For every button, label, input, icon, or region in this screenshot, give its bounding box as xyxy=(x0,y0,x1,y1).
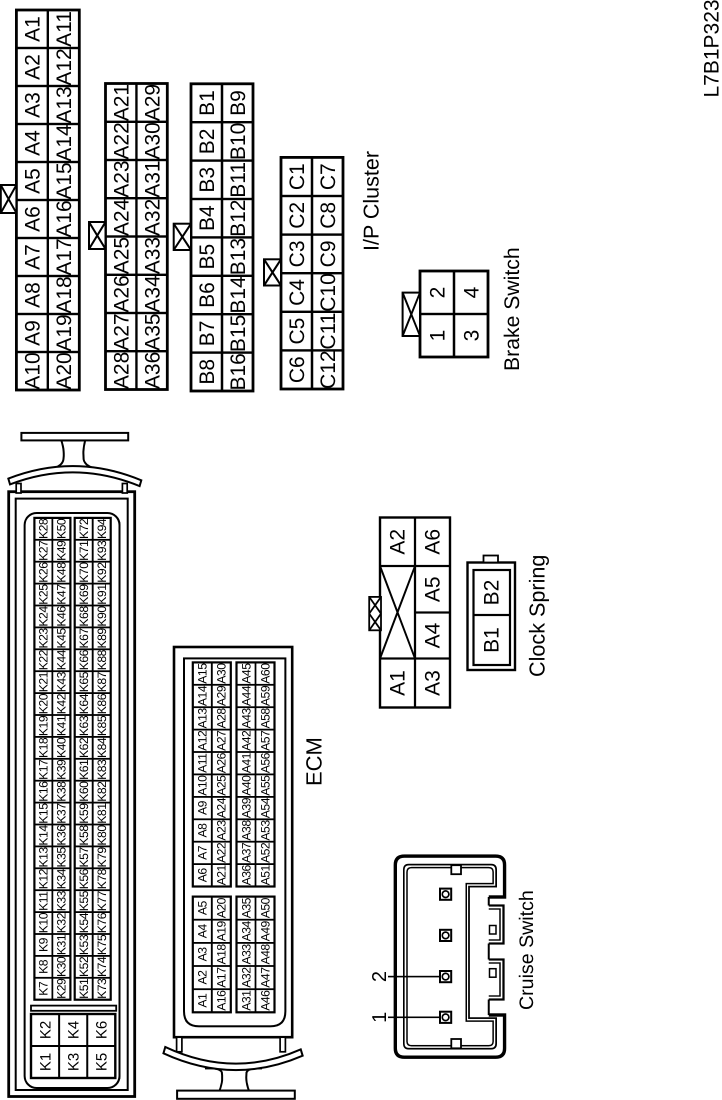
svg-text:C8: C8 xyxy=(317,202,340,229)
svg-text:A3: A3 xyxy=(422,670,445,696)
svg-text:K66: K66 xyxy=(77,649,91,670)
svg-text:K53: K53 xyxy=(77,934,91,955)
svg-text:A3: A3 xyxy=(196,947,210,962)
svg-text:K58: K58 xyxy=(77,825,91,846)
svg-text:K14: K14 xyxy=(37,825,51,846)
svg-text:B2: B2 xyxy=(481,580,504,606)
svg-text:A19: A19 xyxy=(53,314,76,351)
svg-text:K77: K77 xyxy=(95,890,109,911)
svg-text:K75: K75 xyxy=(95,934,109,955)
svg-text:A23: A23 xyxy=(110,160,133,197)
svg-text:A16: A16 xyxy=(53,200,76,237)
svg-text:A18: A18 xyxy=(215,944,229,965)
svg-text:A16: A16 xyxy=(215,990,229,1011)
svg-text:A43: A43 xyxy=(239,708,253,729)
svg-text:A12: A12 xyxy=(53,48,76,85)
svg-text:K34: K34 xyxy=(55,868,69,889)
svg-text:K18: K18 xyxy=(37,737,51,758)
svg-text:A29: A29 xyxy=(141,84,164,121)
svg-text:L7B1P323: L7B1P323 xyxy=(701,0,722,98)
svg-text:C7: C7 xyxy=(317,163,340,190)
svg-text:K48: K48 xyxy=(55,562,69,583)
svg-text:A34: A34 xyxy=(239,920,253,941)
svg-text:K86: K86 xyxy=(95,693,109,714)
svg-text:B8: B8 xyxy=(196,359,219,385)
svg-text:K59: K59 xyxy=(77,803,91,824)
svg-text:B4: B4 xyxy=(196,205,219,231)
svg-text:2: 2 xyxy=(369,971,391,982)
svg-text:K10: K10 xyxy=(37,912,51,933)
svg-text:K91: K91 xyxy=(95,584,109,605)
svg-text:C5: C5 xyxy=(286,318,309,345)
svg-text:A46: A46 xyxy=(258,990,272,1011)
svg-text:K42: K42 xyxy=(55,693,69,714)
svg-text:A27: A27 xyxy=(215,730,229,751)
svg-text:A35: A35 xyxy=(141,313,164,350)
svg-text:K40: K40 xyxy=(55,737,69,758)
svg-text:A6: A6 xyxy=(22,206,45,232)
svg-text:K9: K9 xyxy=(37,937,51,952)
svg-text:K64: K64 xyxy=(77,693,91,714)
svg-text:B9: B9 xyxy=(227,90,250,116)
svg-text:A36: A36 xyxy=(239,864,253,885)
svg-text:A2: A2 xyxy=(196,970,210,985)
svg-text:Clock Spring: Clock Spring xyxy=(525,555,550,677)
svg-text:B1: B1 xyxy=(196,90,219,116)
svg-text:A10: A10 xyxy=(196,775,210,796)
svg-text:A6: A6 xyxy=(422,529,445,555)
svg-text:K72: K72 xyxy=(77,518,91,539)
svg-text:K49: K49 xyxy=(55,540,69,561)
svg-text:K24: K24 xyxy=(37,606,51,627)
svg-text:A13: A13 xyxy=(196,708,210,729)
svg-text:C4: C4 xyxy=(286,279,309,306)
svg-text:K89: K89 xyxy=(95,628,109,649)
svg-text:B1: B1 xyxy=(481,627,504,653)
svg-text:K32: K32 xyxy=(55,912,69,933)
svg-text:4: 4 xyxy=(461,286,484,298)
svg-text:K74: K74 xyxy=(95,956,109,977)
svg-text:A49: A49 xyxy=(258,920,272,941)
svg-text:A32: A32 xyxy=(141,199,164,236)
svg-text:K17: K17 xyxy=(37,759,51,780)
svg-text:K29: K29 xyxy=(55,978,69,999)
svg-text:A21: A21 xyxy=(110,84,133,121)
svg-text:K65: K65 xyxy=(77,671,91,692)
svg-text:K46: K46 xyxy=(55,606,69,627)
svg-text:K43: K43 xyxy=(55,671,69,692)
svg-text:A51: A51 xyxy=(258,864,272,885)
svg-text:A39: A39 xyxy=(239,797,253,818)
svg-text:K73: K73 xyxy=(95,978,109,999)
svg-text:K35: K35 xyxy=(55,847,69,868)
svg-text:A60: A60 xyxy=(258,663,272,684)
svg-text:A17: A17 xyxy=(215,967,229,988)
svg-text:A1: A1 xyxy=(22,16,45,42)
svg-text:A5: A5 xyxy=(196,901,210,916)
svg-text:K31: K31 xyxy=(55,934,69,955)
svg-text:K15: K15 xyxy=(37,803,51,824)
svg-text:A56: A56 xyxy=(258,752,272,773)
svg-text:K47: K47 xyxy=(55,584,69,605)
svg-text:A17: A17 xyxy=(53,238,76,275)
svg-text:A28: A28 xyxy=(110,352,133,389)
svg-text:A19: A19 xyxy=(215,920,229,941)
svg-text:K12: K12 xyxy=(37,868,51,889)
svg-text:A36: A36 xyxy=(141,352,164,389)
svg-text:K78: K78 xyxy=(95,868,109,889)
svg-text:A27: A27 xyxy=(110,313,133,350)
svg-text:K3: K3 xyxy=(66,1053,83,1071)
svg-text:A28: A28 xyxy=(215,708,229,729)
svg-text:K45: K45 xyxy=(55,628,69,649)
svg-text:A31: A31 xyxy=(141,160,164,197)
svg-text:K41: K41 xyxy=(55,715,69,736)
svg-text:A33: A33 xyxy=(141,237,164,274)
svg-text:K1: K1 xyxy=(37,1053,54,1071)
svg-text:A26: A26 xyxy=(110,275,133,312)
svg-text:B10: B10 xyxy=(227,123,250,160)
svg-text:Brake Switch: Brake Switch xyxy=(501,247,524,371)
svg-text:A52: A52 xyxy=(258,842,272,863)
svg-text:A37: A37 xyxy=(239,842,253,863)
svg-text:A22: A22 xyxy=(215,842,229,863)
svg-text:A3: A3 xyxy=(22,92,45,118)
svg-text:I/P Cluster: I/P Cluster xyxy=(360,151,384,251)
svg-text:K19: K19 xyxy=(37,715,51,736)
svg-text:A57: A57 xyxy=(258,730,272,751)
svg-text:K84: K84 xyxy=(95,737,109,758)
svg-text:K44: K44 xyxy=(55,649,69,670)
svg-text:K36: K36 xyxy=(55,825,69,846)
svg-text:K55: K55 xyxy=(77,890,91,911)
svg-text:A31: A31 xyxy=(239,990,253,1011)
svg-text:A35: A35 xyxy=(239,897,253,918)
svg-text:K61: K61 xyxy=(77,759,91,780)
svg-text:B7: B7 xyxy=(196,321,219,347)
svg-text:K90: K90 xyxy=(95,606,109,627)
svg-text:C11: C11 xyxy=(317,313,340,350)
svg-text:K76: K76 xyxy=(95,912,109,933)
svg-text:A5: A5 xyxy=(22,168,45,194)
svg-text:B12: B12 xyxy=(227,200,250,237)
svg-text:A34: A34 xyxy=(141,275,164,313)
svg-text:K5: K5 xyxy=(94,1053,111,1071)
svg-text:K25: K25 xyxy=(37,584,51,605)
svg-text:K63: K63 xyxy=(77,715,91,736)
svg-text:A26: A26 xyxy=(215,752,229,773)
svg-text:K85: K85 xyxy=(95,715,109,736)
svg-text:A14: A14 xyxy=(196,685,210,706)
svg-text:A11: A11 xyxy=(196,753,210,773)
svg-text:A4: A4 xyxy=(196,924,210,939)
svg-text:K67: K67 xyxy=(77,628,91,649)
svg-text:A15: A15 xyxy=(196,663,210,684)
svg-text:K87: K87 xyxy=(95,671,109,692)
svg-text:A40: A40 xyxy=(239,775,253,796)
svg-text:K57: K57 xyxy=(77,847,91,868)
svg-text:A18: A18 xyxy=(53,276,76,313)
svg-text:K33: K33 xyxy=(55,890,69,911)
svg-text:K13: K13 xyxy=(37,847,51,868)
svg-text:B15: B15 xyxy=(227,315,250,352)
svg-text:A32: A32 xyxy=(239,967,253,988)
svg-text:A25: A25 xyxy=(215,775,229,796)
svg-text:C12: C12 xyxy=(317,350,340,389)
svg-text:A4: A4 xyxy=(422,622,445,648)
svg-text:A47: A47 xyxy=(258,967,272,988)
svg-text:B3: B3 xyxy=(196,167,219,193)
svg-text:A41: A41 xyxy=(239,752,253,773)
svg-text:K6: K6 xyxy=(94,1021,111,1039)
svg-text:C1: C1 xyxy=(286,163,309,190)
svg-text:A15: A15 xyxy=(53,162,76,199)
svg-text:A42: A42 xyxy=(239,730,253,751)
svg-text:3: 3 xyxy=(461,330,484,342)
svg-text:A45: A45 xyxy=(239,663,253,684)
svg-text:K39: K39 xyxy=(55,759,69,780)
svg-text:A5: A5 xyxy=(422,576,445,602)
svg-text:A1: A1 xyxy=(196,993,210,1008)
svg-text:A55: A55 xyxy=(258,775,272,796)
svg-text:1: 1 xyxy=(369,1012,391,1023)
svg-text:A30: A30 xyxy=(215,663,229,684)
svg-text:A13: A13 xyxy=(53,86,76,123)
svg-text:C3: C3 xyxy=(286,240,309,267)
svg-text:2: 2 xyxy=(427,287,450,299)
svg-text:A21: A21 xyxy=(215,864,229,885)
svg-text:A24: A24 xyxy=(110,198,133,236)
svg-text:K23: K23 xyxy=(37,628,51,649)
svg-text:A11: A11 xyxy=(53,11,76,47)
svg-text:A7: A7 xyxy=(22,244,45,270)
svg-text:K56: K56 xyxy=(77,868,91,889)
svg-text:A8: A8 xyxy=(22,282,45,308)
svg-text:A54: A54 xyxy=(258,797,272,818)
svg-text:K69: K69 xyxy=(77,584,91,605)
svg-text:K28: K28 xyxy=(37,518,51,539)
svg-text:1: 1 xyxy=(427,330,450,342)
svg-text:K94: K94 xyxy=(95,518,109,539)
svg-text:K20: K20 xyxy=(37,693,51,714)
svg-text:A7: A7 xyxy=(196,845,210,860)
svg-text:A30: A30 xyxy=(141,122,164,159)
svg-text:A8: A8 xyxy=(196,823,210,838)
svg-text:K26: K26 xyxy=(37,562,51,583)
svg-text:K88: K88 xyxy=(95,649,109,670)
svg-text:B13: B13 xyxy=(227,238,250,275)
svg-text:A9: A9 xyxy=(22,320,45,346)
svg-text:A50: A50 xyxy=(258,897,272,918)
svg-text:A29: A29 xyxy=(215,685,229,706)
svg-text:K21: K21 xyxy=(37,671,51,692)
svg-text:K7: K7 xyxy=(37,981,51,996)
svg-text:K81: K81 xyxy=(95,803,109,824)
svg-text:A44: A44 xyxy=(239,685,253,706)
svg-text:A2: A2 xyxy=(22,54,45,80)
svg-text:K92: K92 xyxy=(95,562,109,583)
svg-text:K51: K51 xyxy=(77,978,91,999)
svg-text:A2: A2 xyxy=(387,529,410,555)
svg-text:K62: K62 xyxy=(77,737,91,758)
svg-text:A14: A14 xyxy=(53,124,76,162)
svg-text:K8: K8 xyxy=(37,959,51,974)
svg-text:C6: C6 xyxy=(286,356,309,383)
svg-text:A12: A12 xyxy=(196,730,210,751)
svg-text:K80: K80 xyxy=(95,825,109,846)
svg-text:K50: K50 xyxy=(55,518,69,539)
svg-text:K79: K79 xyxy=(95,847,109,868)
svg-text:K22: K22 xyxy=(37,649,51,670)
svg-text:C9: C9 xyxy=(317,240,340,267)
svg-text:A1: A1 xyxy=(387,670,410,696)
svg-text:A23: A23 xyxy=(215,820,229,841)
svg-text:B2: B2 xyxy=(196,129,219,155)
svg-text:K82: K82 xyxy=(95,781,109,802)
svg-text:A59: A59 xyxy=(258,685,272,706)
svg-text:A6: A6 xyxy=(196,868,210,883)
svg-text:C2: C2 xyxy=(286,202,309,229)
svg-text:K37: K37 xyxy=(55,803,69,824)
svg-text:K30: K30 xyxy=(55,956,69,977)
svg-text:ECM: ECM xyxy=(302,737,327,786)
svg-text:K70: K70 xyxy=(77,562,91,583)
svg-text:A4: A4 xyxy=(22,130,45,156)
svg-text:K54: K54 xyxy=(77,912,91,933)
svg-text:A53: A53 xyxy=(258,820,272,841)
svg-text:A33: A33 xyxy=(239,944,253,965)
svg-text:B11: B11 xyxy=(227,162,250,198)
svg-text:K27: K27 xyxy=(37,540,51,561)
svg-text:B14: B14 xyxy=(227,276,250,314)
svg-text:A48: A48 xyxy=(258,944,272,965)
svg-text:K93: K93 xyxy=(95,540,109,561)
svg-text:B5: B5 xyxy=(196,244,219,270)
svg-text:A20: A20 xyxy=(53,352,76,389)
svg-text:K2: K2 xyxy=(37,1021,54,1039)
svg-text:Cruise Switch: Cruise Switch xyxy=(516,890,538,1010)
svg-text:A25: A25 xyxy=(110,237,133,274)
svg-text:A10: A10 xyxy=(22,352,45,389)
svg-text:A20: A20 xyxy=(215,897,229,918)
svg-text:K11: K11 xyxy=(37,891,51,911)
svg-text:K16: K16 xyxy=(37,781,51,802)
svg-text:K68: K68 xyxy=(77,606,91,627)
svg-text:K60: K60 xyxy=(77,781,91,802)
svg-text:A38: A38 xyxy=(239,820,253,841)
svg-text:A24: A24 xyxy=(215,797,229,818)
svg-text:K71: K71 xyxy=(77,540,91,561)
svg-text:C10: C10 xyxy=(317,273,340,312)
svg-text:K83: K83 xyxy=(95,759,109,780)
svg-text:A22: A22 xyxy=(110,122,133,159)
svg-text:K4: K4 xyxy=(66,1021,83,1039)
svg-text:A9: A9 xyxy=(196,800,210,815)
svg-text:K52: K52 xyxy=(77,956,91,977)
svg-text:A58: A58 xyxy=(258,708,272,729)
svg-text:K38: K38 xyxy=(55,781,69,802)
svg-text:B6: B6 xyxy=(196,282,219,308)
svg-text:B16: B16 xyxy=(227,353,250,390)
